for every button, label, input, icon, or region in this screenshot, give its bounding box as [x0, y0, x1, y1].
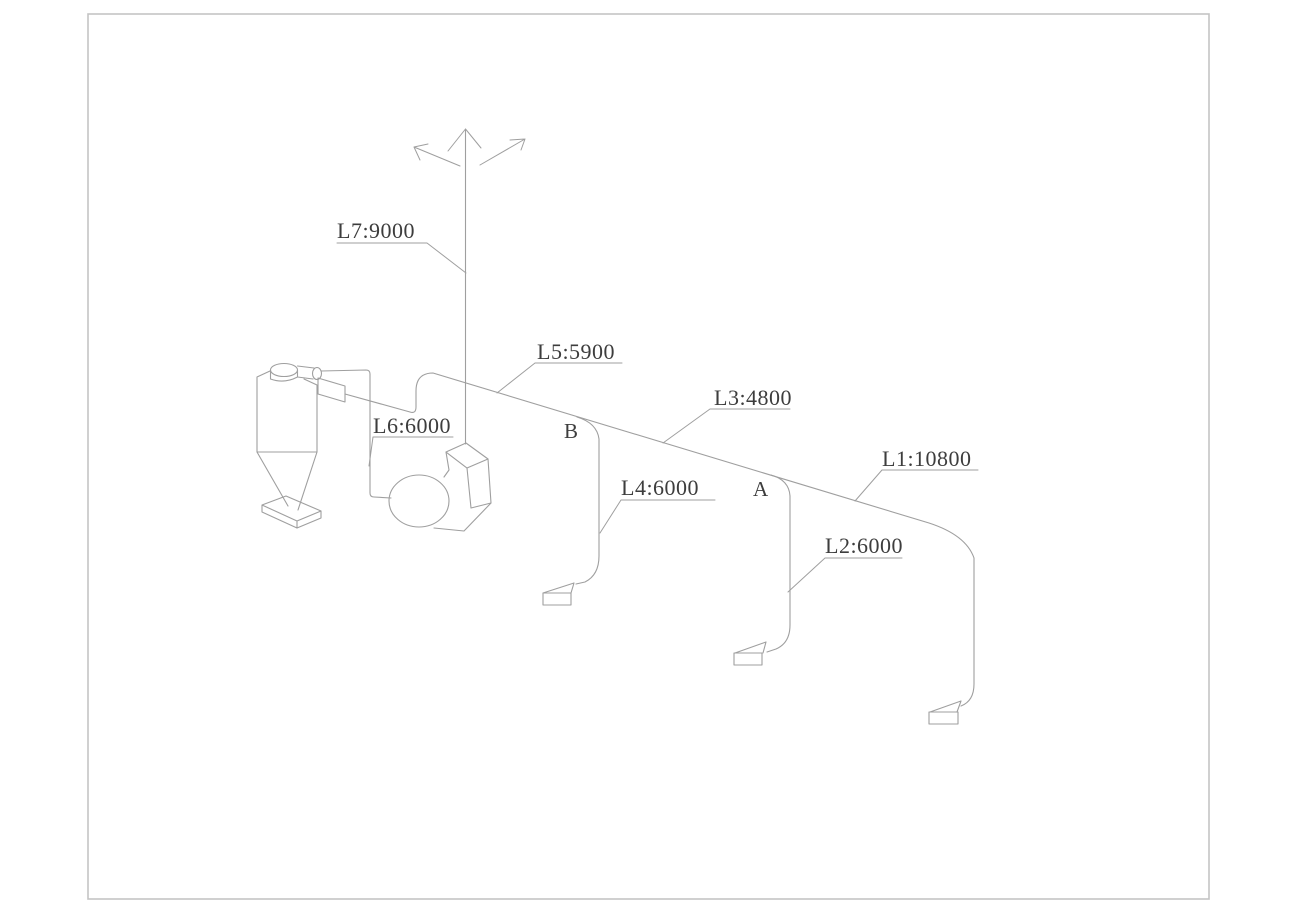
cyclone-top-cylinder — [271, 370, 298, 381]
stack-tip-arrow-icon — [448, 129, 481, 151]
hood-mouth — [543, 593, 571, 605]
leader-l4 — [600, 500, 715, 533]
hood-flare — [930, 701, 961, 712]
duct-label-l2: L2:6000 — [825, 533, 903, 558]
drawing-canvas: L7:9000 L5:5900 L3:4800 L1:10800 L6:6000… — [0, 0, 1297, 917]
leader-l2 — [788, 558, 902, 592]
duct-label-l3: L3:4800 — [714, 385, 792, 410]
suction-hood-right — [929, 701, 961, 724]
airflow-arrow-left-icon — [414, 144, 460, 166]
branch-duct-line — [576, 417, 599, 584]
fan-outlet-box-top — [446, 443, 488, 468]
duct-label-l1: L1:10800 — [882, 446, 972, 471]
duct-label-l7: L7:9000 — [337, 218, 415, 243]
branch-duct-b — [543, 417, 599, 605]
airflow-arrow-right-icon — [480, 139, 525, 165]
branch-duct-line — [767, 475, 790, 652]
duct-system-diagram: L7:9000 L5:5900 L3:4800 L1:10800 L6:6000… — [0, 0, 1297, 917]
exhaust-stack — [414, 129, 525, 444]
cyclone-separator — [257, 364, 345, 529]
fan-outlet-box-edge — [444, 452, 449, 477]
junction-label-b: B — [564, 419, 579, 443]
leader-l1 — [855, 470, 978, 501]
cyclone-inlet-box — [318, 378, 345, 402]
cyclone-base-flange — [262, 496, 321, 528]
duct-label-l4: L4:6000 — [621, 475, 699, 500]
hood-flare — [735, 642, 766, 653]
branch-duct-a — [734, 475, 790, 665]
leader-l3 — [663, 409, 790, 443]
centrifugal-fan — [389, 443, 491, 531]
leader-l7 — [337, 243, 466, 273]
drawing-border — [88, 14, 1209, 899]
hood-mouth — [929, 712, 958, 724]
cyclone-top-outlet — [271, 364, 298, 377]
fan-scroll — [389, 475, 449, 527]
leader-l5 — [497, 363, 622, 393]
hood-mouth — [734, 653, 762, 665]
outlet-pipe — [298, 366, 315, 379]
junction-label-a: A — [753, 477, 769, 501]
outlet-pipe-end — [313, 368, 322, 380]
duct-label-l6: L6:6000 — [373, 413, 451, 438]
cyclone-cone — [257, 452, 317, 510]
duct-label-l5: L5:5900 — [537, 339, 615, 364]
leader-l6 — [369, 437, 453, 466]
hood-flare — [543, 583, 574, 593]
cyclone-body — [257, 371, 317, 452]
